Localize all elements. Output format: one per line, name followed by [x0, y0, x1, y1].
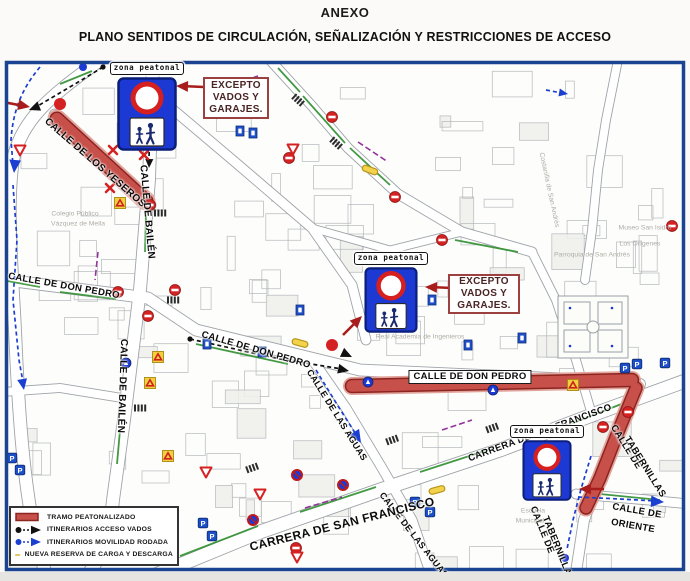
excepto-line: GARAJES. — [205, 104, 267, 116]
legend-label: NUEVA RESERVA DE CARGA Y DESCARGA — [25, 551, 173, 558]
excepto-line: EXCEPTO — [450, 276, 518, 288]
zona-peatonal-label: zona peatonal — [354, 252, 429, 265]
street-label: CALLE DE DON PEDRO — [200, 329, 312, 371]
zona-peatonal-sign-group: zona peatonal — [117, 62, 177, 151]
street-label: CALLE DE DON PEDRO — [7, 271, 120, 301]
excepto-line: VADOS Y — [450, 288, 518, 300]
red-band-swatch-icon — [15, 512, 43, 522]
pedestrian-zone-sign-icon — [362, 267, 420, 333]
legend-label: ITINERARIOS ACCESO VADOS — [47, 526, 152, 533]
poi-label: Escuela — [521, 508, 545, 515]
plan-page: ANEXO PLANO SENTIDOS DE CIRCULACIÓN, SEÑ… — [0, 0, 690, 581]
poi-label: Museo San Isidro — [619, 225, 672, 232]
street-label: TABERNILLAS — [622, 435, 668, 500]
zona-peatonal-sign-group: zona peatonal — [362, 252, 420, 333]
legend-row: TRAMO PEATONALIZADO — [15, 512, 173, 522]
street-label: CALLE DE BAILÉN — [115, 339, 129, 434]
pedestrian-zone-sign-icon — [517, 440, 577, 501]
street-label: CALLE DE LAS AGUAS — [305, 368, 369, 463]
blue-itinerary-swatch-icon — [15, 537, 43, 547]
black-itinerary-swatch-icon — [15, 525, 43, 535]
excepto-vados-note: EXCEPTOVADOS YGARAJES. — [203, 77, 269, 119]
poi-label: Real Academia de Ingenieros — [376, 334, 465, 341]
street-label: ORIENTE — [610, 517, 656, 536]
legend-row: ITINERARIOS MOVILIDAD RODADA — [15, 537, 173, 547]
excepto-line: GARAJES. — [450, 300, 518, 312]
pedestrian-zone-sign-icon — [117, 77, 177, 151]
zona-peatonal-label: zona peatonal — [510, 425, 585, 438]
legend-label: TRAMO PEATONALIZADO — [47, 514, 136, 521]
map-overlays: CALLE DE LOS YESEROSCALLE DE BAILÉNCALLE… — [0, 0, 690, 581]
legend-row: NUEVA RESERVA DE CARGA Y DESCARGA — [15, 550, 173, 560]
legend-row: ITINERARIOS ACCESO VADOS — [15, 525, 173, 535]
poi-label: Municipal — [516, 518, 545, 525]
zona-peatonal-label: zona peatonal — [110, 62, 185, 75]
yellow-reserve-swatch-icon — [15, 550, 21, 560]
map-legend: TRAMO PEATONALIZADO ITINERARIOS ACCESO V… — [9, 506, 179, 566]
excepto-vados-note: EXCEPTOVADOS YGARAJES. — [448, 274, 520, 314]
excepto-line: VADOS Y — [205, 92, 267, 104]
poi-label: Costanilla de San Andrés — [538, 152, 561, 228]
poi-label: Vázquez de Mella — [51, 221, 105, 228]
poi-label: Colegio Público — [51, 211, 98, 218]
street-label: CALLE DE BAILÉN — [137, 164, 156, 259]
zona-peatonal-sign-group: zona peatonal — [517, 425, 577, 501]
poi-label: Los Orígenes — [620, 241, 661, 248]
legend-label: ITINERARIOS MOVILIDAD RODADA — [47, 539, 168, 546]
street-label: CALLE DE DON PEDRO — [408, 370, 531, 384]
page-margin — [0, 572, 690, 581]
poi-label: Parroquia de San Andrés — [554, 252, 630, 259]
excepto-line: EXCEPTO — [205, 80, 267, 92]
